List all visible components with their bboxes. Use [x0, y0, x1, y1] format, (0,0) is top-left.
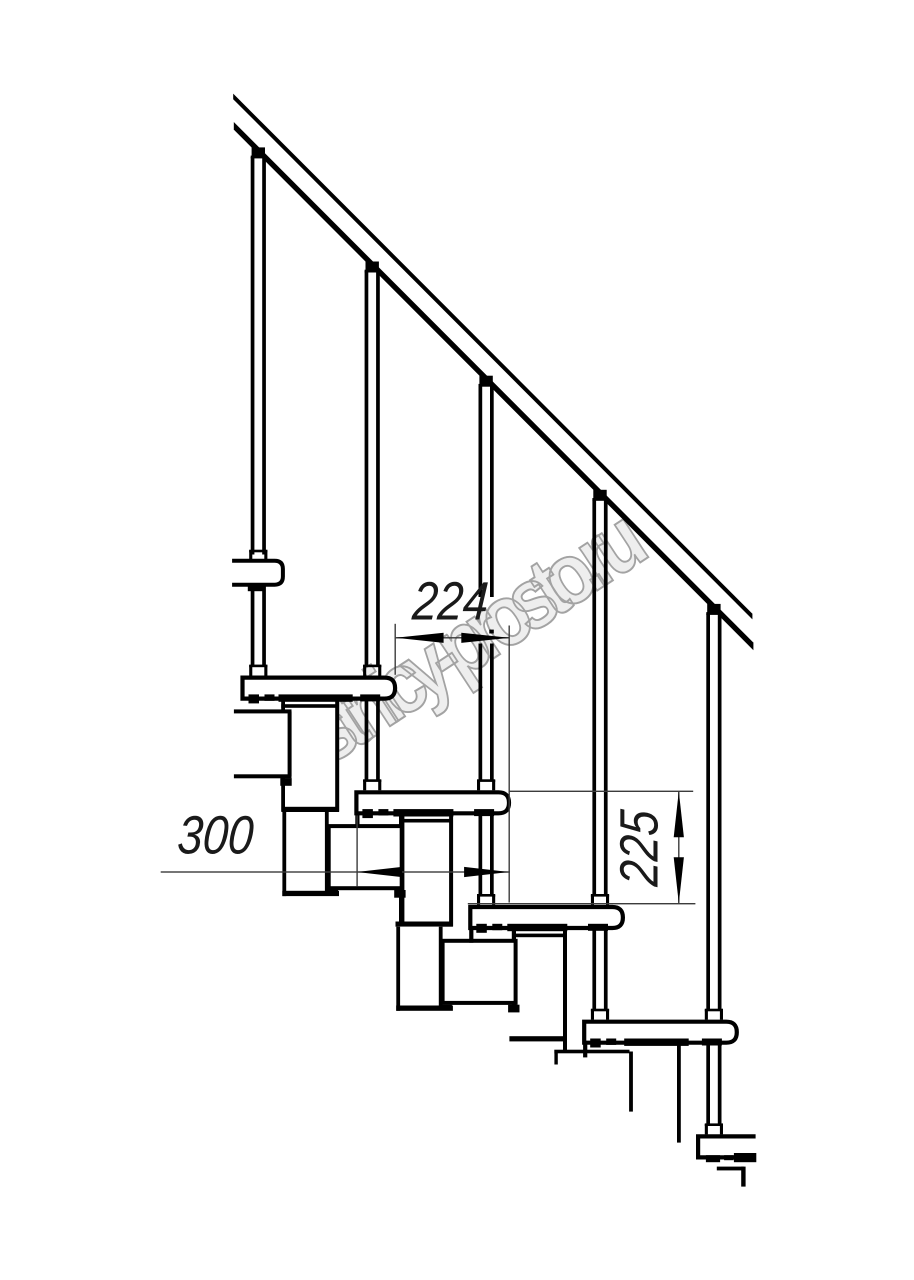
svg-text:225: 225: [609, 808, 670, 889]
svg-text:224: 224: [410, 571, 491, 632]
svg-text:300: 300: [176, 805, 256, 866]
